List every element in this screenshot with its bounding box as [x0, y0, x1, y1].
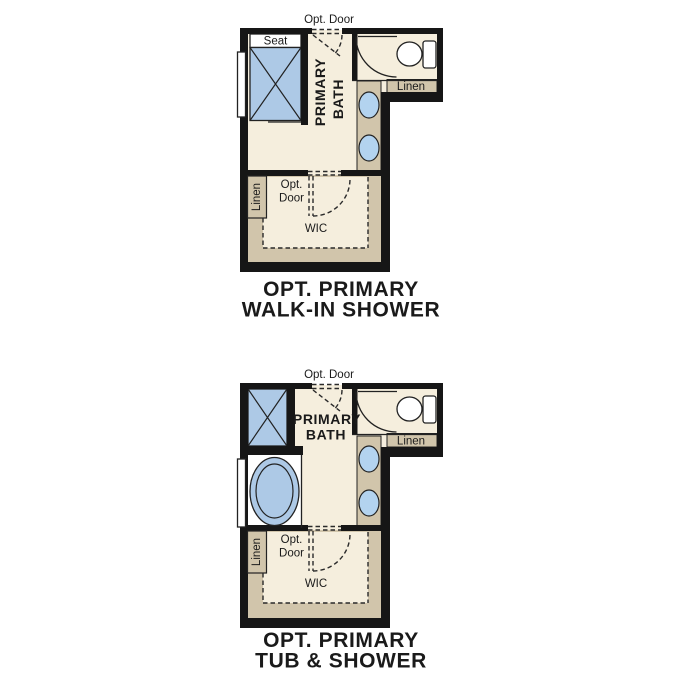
wic-label: WIC: [305, 223, 327, 235]
sink: [359, 446, 379, 472]
opt-door-top-label: Opt. Door: [304, 369, 354, 381]
wic-floor: [263, 532, 368, 603]
room-label-line1: PRIMARY: [293, 411, 361, 427]
plan-walk-in-shower: Opt. Door Seat PRIMARY BATH Linen Linen …: [238, 14, 444, 322]
wic-door-label-line2: Door: [279, 193, 304, 205]
tub-glass-panel: [238, 459, 246, 527]
linen-upper-label: Linen: [397, 81, 425, 93]
wic-label: WIC: [305, 578, 327, 590]
room-label-line2: BATH: [306, 427, 346, 443]
wic-door-label-line2: Door: [279, 548, 304, 560]
linen-lower-label: Linen: [251, 538, 263, 566]
seat-label: Seat: [264, 36, 288, 48]
plan1-caption-line2: WALK-IN SHOWER: [242, 299, 441, 322]
toilet-tank: [423, 41, 436, 68]
room-label-line2: BATH: [330, 79, 346, 119]
linen-lower-label: Linen: [251, 183, 263, 211]
linen-upper-label: Linen: [397, 436, 425, 448]
bathtub: [250, 458, 299, 526]
plan-tub-and-shower: Opt. Door PRIMARY BATH Linen Linen Opt. …: [238, 369, 444, 673]
floorplan-canvas: Opt. Door Seat PRIMARY BATH Linen Linen …: [0, 0, 687, 687]
shower: [248, 389, 287, 446]
wic-floor: [263, 177, 368, 248]
toilet-bowl: [397, 397, 422, 421]
wic-door-label-line1: Opt.: [281, 179, 303, 191]
toilet-bowl: [397, 42, 422, 66]
tub-outer: [250, 458, 299, 526]
sink: [359, 92, 379, 118]
toilet: [397, 41, 436, 68]
sink: [359, 490, 379, 516]
sink: [359, 135, 379, 161]
opt-door-top-label: Opt. Door: [304, 14, 354, 26]
plan2-caption-line2: TUB & SHOWER: [255, 650, 427, 673]
toilet: [397, 396, 436, 423]
floorplan-page: Opt. Door Seat PRIMARY BATH Linen Linen …: [0, 0, 687, 687]
toilet-tank: [423, 396, 436, 423]
wic-door-label-line1: Opt.: [281, 534, 303, 546]
shower-glass-door: [238, 52, 246, 117]
room-label-line1: PRIMARY: [312, 58, 328, 126]
